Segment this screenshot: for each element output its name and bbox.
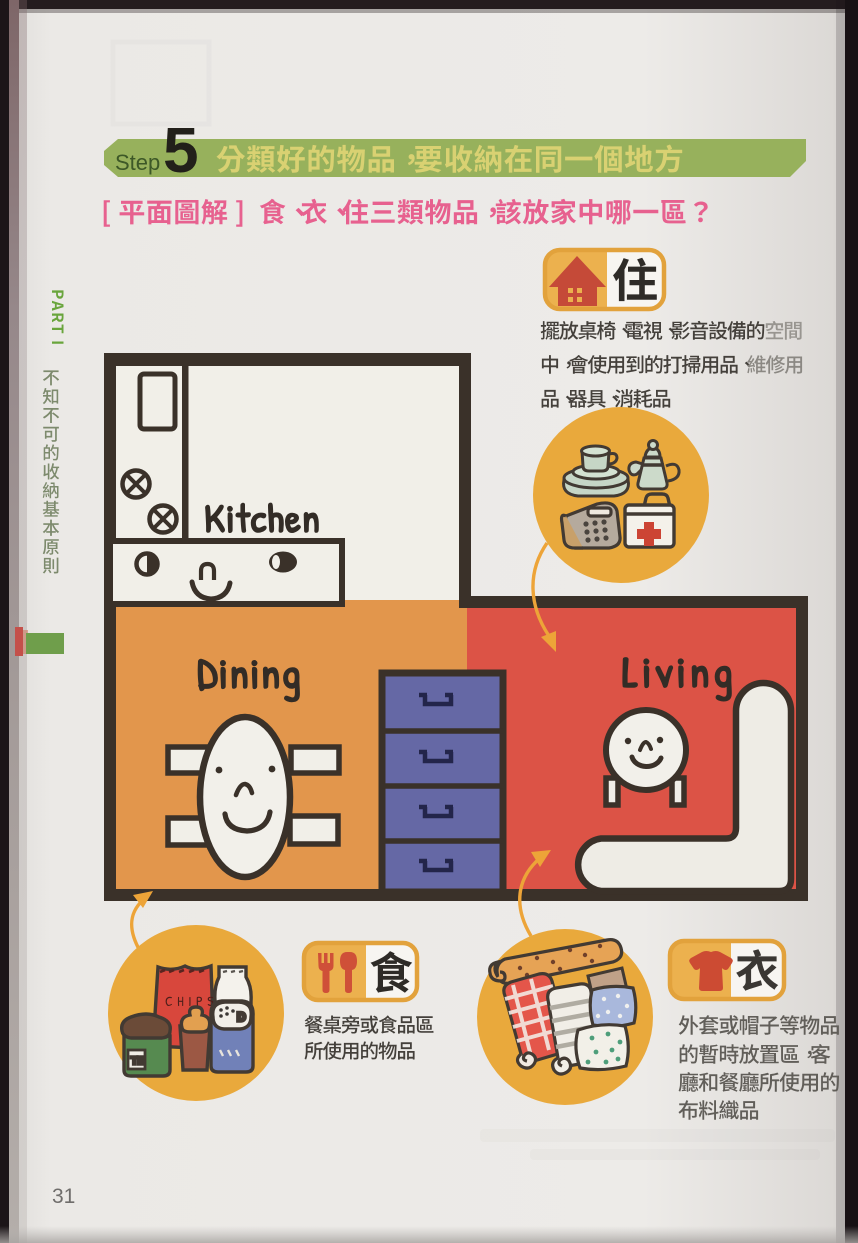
svg-text:D: D [237, 1010, 246, 1024]
svg-text:TE: TE [131, 1056, 144, 1067]
svg-text:31: 31 [52, 1185, 75, 1208]
svg-text:Step: Step [115, 150, 160, 175]
svg-text:5: 5 [163, 114, 199, 186]
